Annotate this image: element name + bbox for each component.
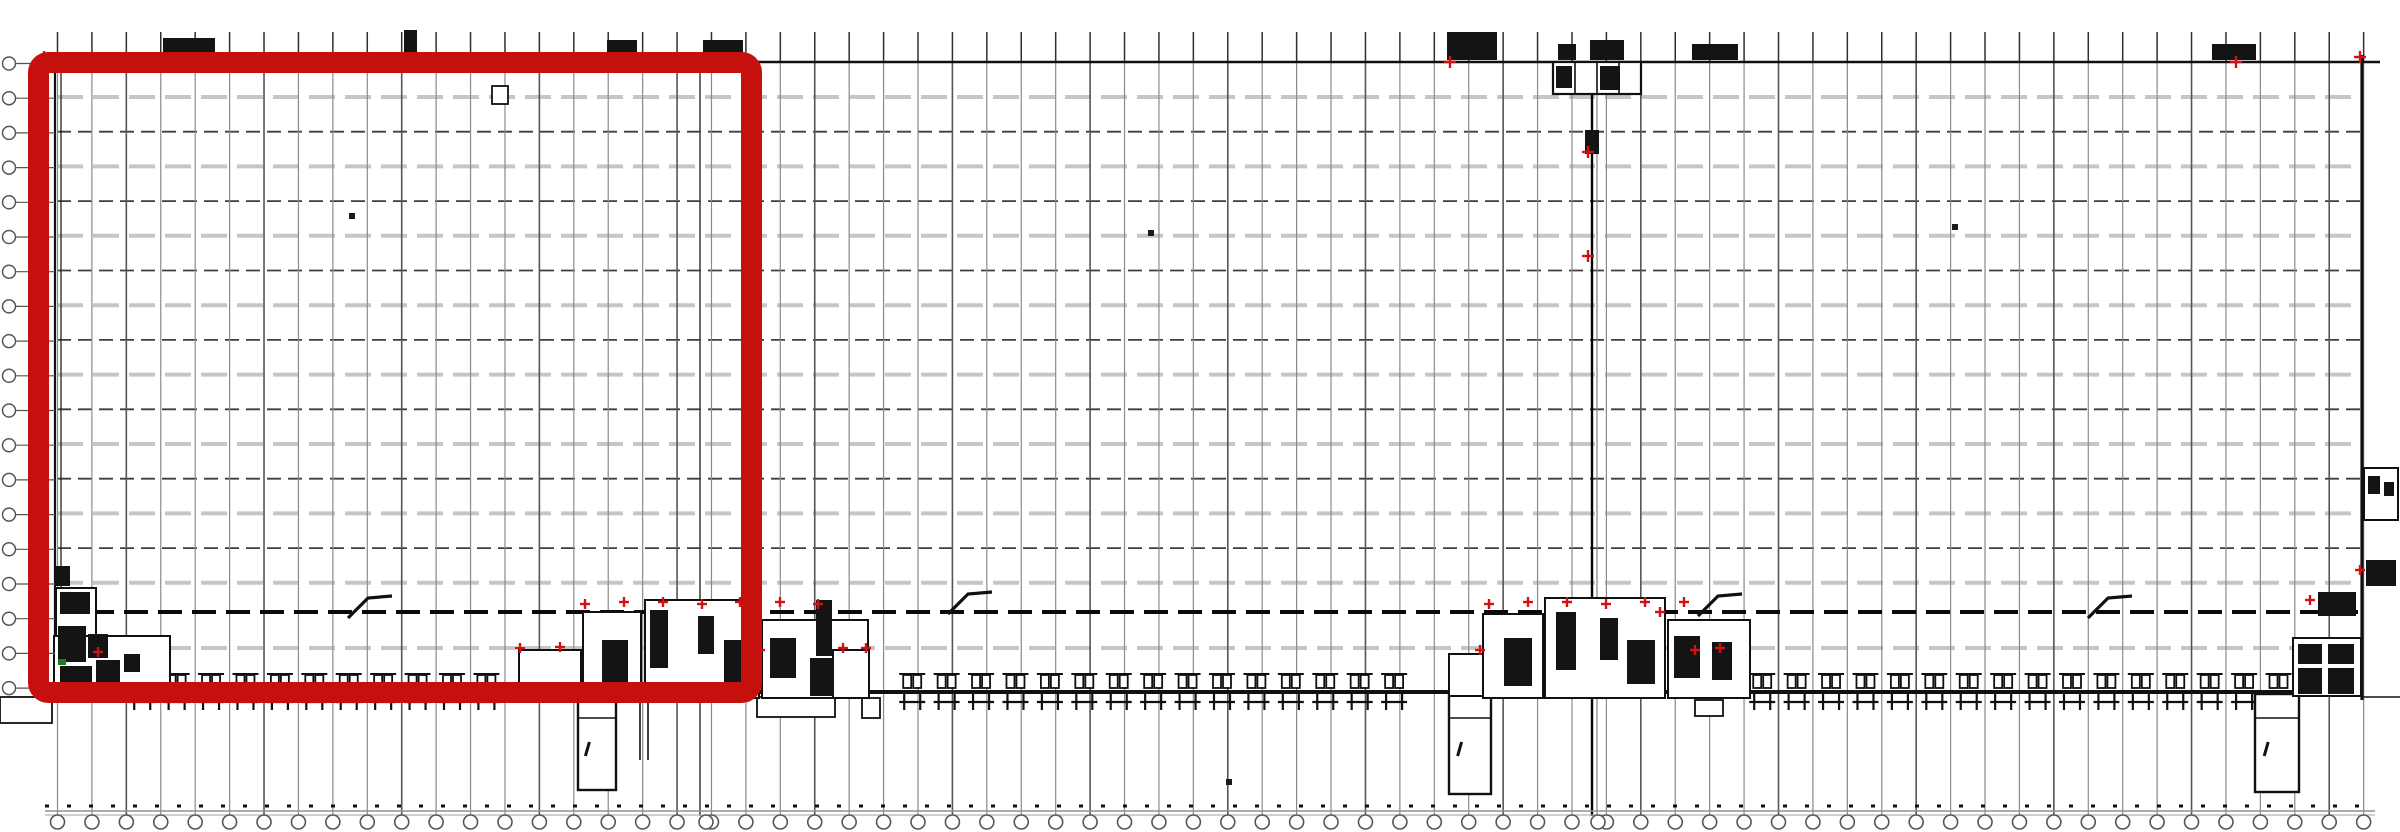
page-background (0, 0, 2400, 832)
floor-plan-screenshot (0, 0, 2400, 832)
floor-plan-drawing (0, 0, 2400, 832)
